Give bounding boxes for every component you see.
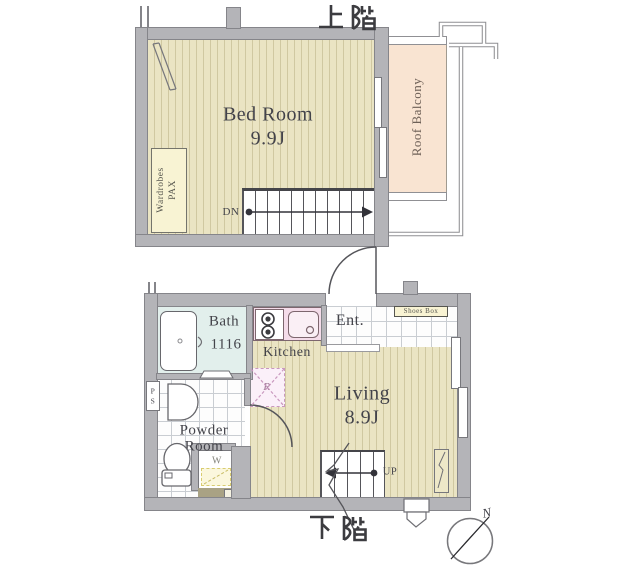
refrigerator-label: R (263, 381, 270, 393)
lower-wall-bottom (145, 498, 470, 510)
roof-balcony-label: Roof Balcony (409, 78, 425, 157)
pipe-space-label: PS (149, 386, 157, 406)
wall-bath-kitchen (247, 306, 252, 379)
upper-wall-bottom (136, 235, 388, 246)
living-window-sash-2 (458, 387, 468, 438)
stairs-upper (242, 188, 375, 235)
stove (255, 309, 284, 340)
upper-wall-stub (227, 8, 240, 28)
stairs-lower (320, 450, 385, 498)
compass-n-label: N (481, 504, 493, 522)
bath-name-label: Bath (209, 314, 239, 331)
wall-kitchen-entrance (322, 306, 326, 345)
lower-wall-stub (404, 282, 417, 294)
wall-bath-powder (157, 374, 250, 379)
lower-wall-top-right (377, 294, 470, 306)
powder-room-label-1: Powder (180, 423, 229, 440)
lower-pipe-tick-1 (148, 282, 150, 294)
upper-floor-title-kanji (319, 5, 375, 29)
floor-plan: Bed Room 9.9J DN Roof Balcony Wardrobes … (0, 0, 640, 569)
upper-floor-title-text: 上階 (0, 0, 1, 1)
living-name-label: Living (334, 383, 390, 406)
bedroom-size-label: 9.9J (251, 128, 286, 151)
compass-icon (448, 517, 493, 564)
balcony-top-rail (388, 36, 447, 45)
entrance-door-icon (329, 247, 376, 294)
living-closet-panel (434, 449, 449, 493)
balcony-bottom-rail (388, 192, 447, 201)
stairs-up-label: UP (383, 467, 397, 478)
bedroom-window-sash-1 (374, 77, 382, 128)
bedroom-name-label: Bed Room (223, 104, 313, 127)
powder-room-label-2: Room (185, 439, 224, 456)
lower-pipe-tick-2 (154, 282, 156, 294)
bathtub (160, 311, 197, 371)
upper-wall-top (136, 28, 388, 39)
wardrobe-label: Wardrobes PAX Wardrobes PAX (156, 167, 180, 212)
bedroom-window-sash-2 (379, 127, 387, 178)
lower-wall-top-left (145, 294, 325, 306)
entrance-step (326, 344, 380, 352)
lower-floor-title-text: 下階 (0, 0, 1, 1)
upper-pipe-tick-2 (147, 6, 149, 28)
wall-washer-right (232, 447, 250, 498)
upper-pipe-tick-1 (140, 6, 142, 28)
kitchen-sink (288, 311, 319, 338)
stairs-dn-label: DN (223, 206, 240, 218)
kitchen-label: Kitchen (263, 345, 311, 361)
living-window-sash-1 (451, 337, 461, 389)
living-size-label: 8.9J (345, 407, 380, 430)
wall-powder-living-upper (245, 379, 250, 405)
wardrobe-text-2: PAX (168, 167, 180, 212)
washer-label: W (212, 456, 222, 467)
upper-wall-left (136, 28, 147, 246)
washer-pan (201, 468, 231, 486)
wardrobe-text-1: Wardrobes (156, 167, 168, 212)
lower-floor-title-kanji (310, 516, 366, 540)
entrance-label: Ent. (336, 312, 364, 330)
shoes-box-label: Shoes Box (404, 307, 439, 315)
bath-size-label: 1116 (211, 337, 242, 354)
